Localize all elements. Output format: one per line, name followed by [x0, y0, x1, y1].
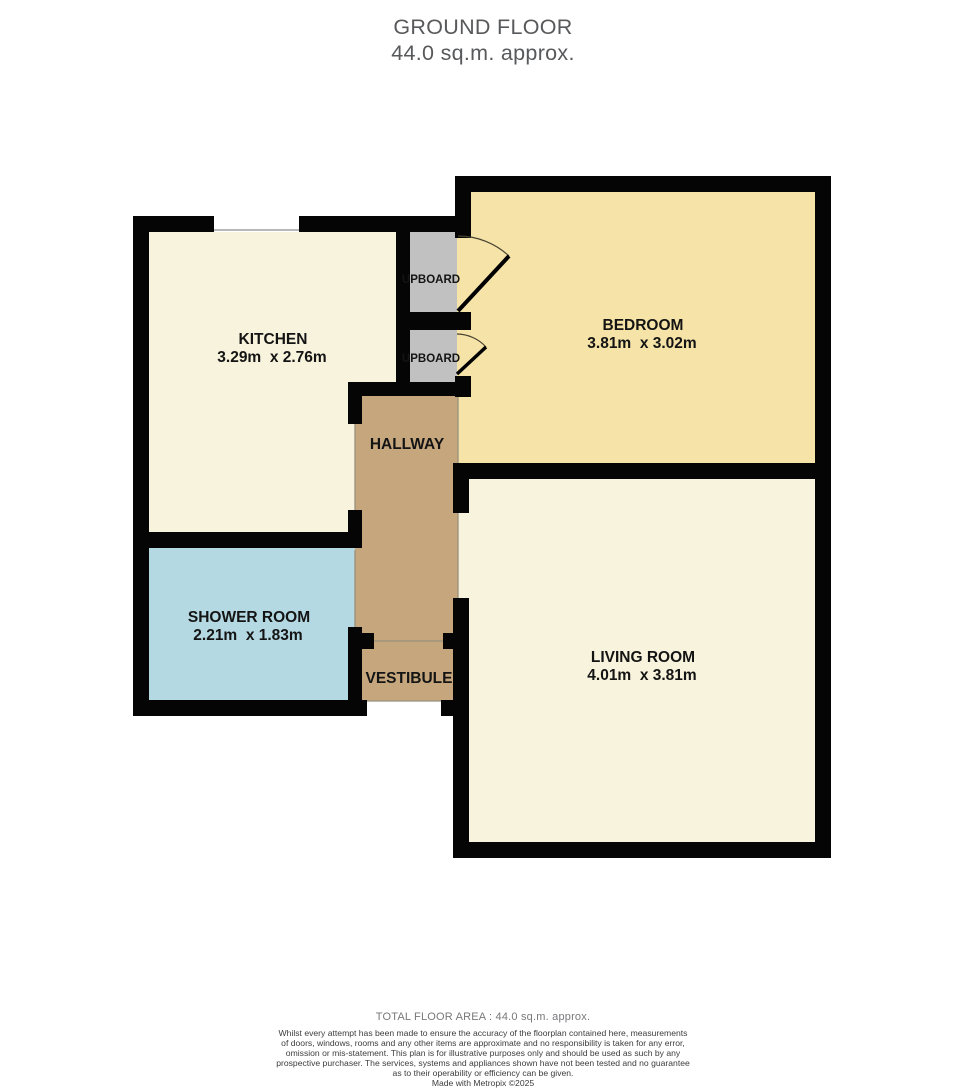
wall-outer-right	[815, 176, 831, 858]
total-floor-area: TOTAL FLOOR AREA : 44.0 sq.m. approx.	[0, 1011, 966, 1023]
living-room-label: LIVING ROOM	[591, 649, 695, 666]
wall-kitchen-shower-divider	[133, 532, 362, 548]
disclaimer-line: Whilst every attempt has been made to en…	[0, 1028, 966, 1038]
floorplan-drawing: KITCHEN 3.29m x 2.76m BEDROOM 3.81m x 3.…	[0, 0, 966, 1080]
wall-bottom-left	[133, 700, 367, 716]
wall-threshold-stub-left	[362, 633, 374, 649]
wall-cupboard-separator	[396, 312, 471, 330]
cupboard-top-area	[404, 232, 457, 312]
disclaimer-line: as to their operability or efficiency ca…	[0, 1068, 966, 1078]
kitchen-dimensions: 3.29m x 2.76m	[217, 349, 326, 366]
wall-living-bottom	[453, 842, 831, 858]
wall-kitchen-top-right	[299, 216, 471, 232]
wall-bedroom-left-top	[455, 176, 471, 238]
wall-hallway-top	[348, 382, 471, 396]
kitchen-area-lower	[149, 388, 355, 540]
hallway-label: HALLWAY	[370, 436, 445, 453]
floorplan-page: GROUND FLOOR 44.0 sq.m. approx.	[0, 0, 966, 1080]
cupboard-bottom-label: UPBOARD	[402, 353, 460, 365]
bedroom-label: BEDROOM	[603, 317, 684, 334]
hallway-area	[355, 388, 458, 649]
bedroom-dimensions: 3.81m x 3.02m	[587, 335, 696, 352]
wall-bedroom-living-divider	[455, 463, 831, 479]
wall-kitchen-cupboard	[396, 216, 410, 396]
shower-room-label: SHOWER ROOM	[188, 609, 310, 626]
wall-kitchen-door-jamb-bottom	[348, 510, 362, 548]
disclaimer-line: omission or mis-statement. This plan is …	[0, 1048, 966, 1058]
wall-vestibule-left	[348, 627, 362, 716]
wall-living-door-jamb	[453, 463, 469, 513]
kitchen-label: KITCHEN	[239, 331, 308, 348]
wall-outer-left	[133, 216, 149, 716]
wall-living-left	[453, 598, 469, 858]
disclaimer-line: of doors, windows, rooms and any other i…	[0, 1038, 966, 1048]
wall-kitchen-door-jamb-top	[348, 382, 362, 424]
footer: TOTAL FLOOR AREA : 44.0 sq.m. approx. Wh…	[0, 1011, 966, 1088]
disclaimer: Whilst every attempt has been made to en…	[0, 1028, 966, 1078]
disclaimer-line: prospective purchaser. The services, sys…	[0, 1058, 966, 1068]
shower-room-dimensions: 2.21m x 1.83m	[193, 627, 302, 644]
living-room-dimensions: 4.01m x 3.81m	[587, 667, 696, 684]
wall-bedroom-left-lower	[455, 376, 471, 397]
wall-bedroom-top	[455, 176, 831, 192]
vestibule-label: VESTIBULE	[366, 670, 453, 687]
cupboard-top-label: UPBOARD	[402, 274, 460, 286]
